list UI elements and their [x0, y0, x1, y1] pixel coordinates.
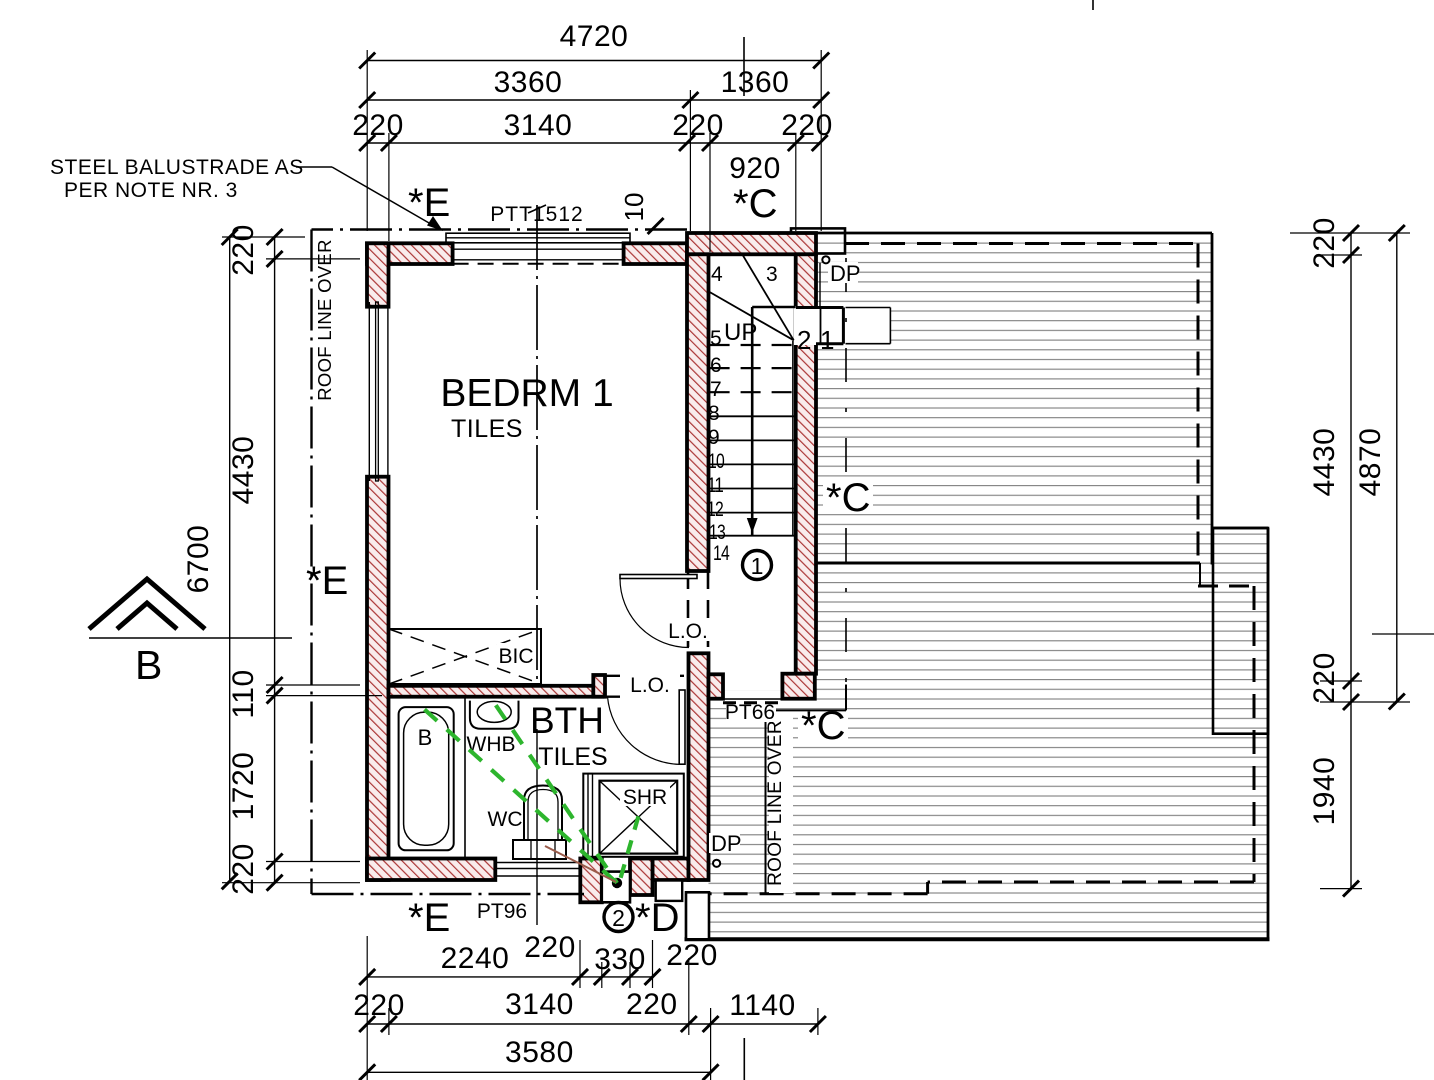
svg-text:8: 8 [708, 402, 719, 425]
svg-text:PTT1512: PTT1512 [490, 203, 583, 226]
svg-text:11: 11 [707, 474, 723, 497]
svg-text:220: 220 [352, 109, 404, 142]
svg-text:2: 2 [612, 905, 625, 931]
svg-text:ROOF LINE OVER: ROOF LINE OVER [314, 239, 335, 400]
svg-text:BTH: BTH [530, 700, 604, 741]
svg-text:7: 7 [710, 378, 721, 401]
svg-text:WC: WC [488, 808, 523, 831]
svg-text:220: 220 [353, 989, 405, 1022]
svg-text:*E: *E [408, 181, 450, 225]
svg-text:L.O.: L.O. [630, 674, 670, 697]
svg-text:220: 220 [1308, 217, 1341, 269]
svg-text:10: 10 [619, 193, 649, 222]
svg-text:DP: DP [711, 831, 742, 856]
svg-text:3140: 3140 [504, 109, 573, 142]
svg-text:1720: 1720 [227, 752, 260, 821]
svg-text:TILES: TILES [451, 415, 523, 443]
svg-text:*C: *C [733, 182, 777, 226]
svg-text:220: 220 [672, 109, 724, 142]
svg-text:220: 220 [524, 931, 576, 964]
svg-text:13: 13 [709, 521, 725, 544]
svg-text:*E: *E [306, 559, 348, 603]
svg-text:4430: 4430 [1308, 428, 1341, 497]
svg-text:*E: *E [408, 896, 450, 940]
svg-text:4430: 4430 [227, 436, 260, 505]
svg-text:B: B [418, 725, 433, 750]
svg-text:1140: 1140 [729, 989, 796, 1022]
svg-text:*D: *D [635, 896, 679, 940]
svg-text:3: 3 [766, 263, 777, 286]
svg-text:220: 220 [626, 988, 678, 1021]
svg-text:2: 2 [797, 325, 811, 355]
svg-text:*C: *C [826, 476, 870, 520]
svg-text:4720: 4720 [560, 20, 629, 53]
svg-text:12: 12 [707, 498, 723, 521]
svg-text:B: B [135, 642, 162, 688]
svg-text:PT96: PT96 [477, 900, 527, 923]
svg-text:4870: 4870 [1354, 428, 1387, 497]
svg-text:5: 5 [710, 327, 721, 350]
svg-text:4: 4 [711, 263, 723, 286]
svg-text:TILES: TILES [538, 743, 607, 771]
svg-text:1940: 1940 [1308, 757, 1341, 826]
svg-text:9: 9 [708, 426, 719, 449]
svg-text:PT66: PT66 [725, 701, 775, 724]
svg-text:BIC: BIC [498, 645, 533, 668]
svg-text:220: 220 [227, 224, 260, 276]
svg-text:920: 920 [729, 152, 781, 185]
svg-text:10: 10 [708, 450, 724, 473]
svg-text:1: 1 [820, 325, 834, 355]
svg-text:1360: 1360 [721, 66, 790, 99]
svg-text:L.O.: L.O. [668, 620, 708, 643]
svg-text:BEDRM 1: BEDRM 1 [440, 372, 613, 415]
svg-text:*C: *C [801, 704, 845, 748]
svg-text:220: 220 [666, 939, 718, 972]
svg-text:220: 220 [227, 843, 260, 895]
svg-text:3580: 3580 [505, 1036, 574, 1069]
svg-text:1: 1 [751, 553, 764, 579]
svg-text:220: 220 [1308, 652, 1341, 704]
svg-text:3360: 3360 [494, 66, 563, 99]
svg-text:STEEL BALUSTRADE AS: STEEL BALUSTRADE AS [50, 156, 304, 179]
svg-text:PER NOTE NR. 3: PER NOTE NR. 3 [64, 179, 238, 202]
svg-text:3140: 3140 [505, 988, 574, 1021]
svg-text:2240: 2240 [441, 942, 510, 975]
svg-text:14: 14 [713, 542, 730, 565]
svg-text:DP: DP [830, 261, 861, 286]
svg-text:6700: 6700 [182, 525, 215, 594]
svg-text:6: 6 [710, 354, 721, 377]
svg-text:SHR: SHR [623, 786, 667, 809]
svg-text:220: 220 [781, 109, 833, 142]
svg-text:110: 110 [227, 669, 260, 718]
svg-text:UP: UP [724, 319, 757, 346]
svg-text:ROOF LINE OVER: ROOF LINE OVER [765, 720, 786, 886]
